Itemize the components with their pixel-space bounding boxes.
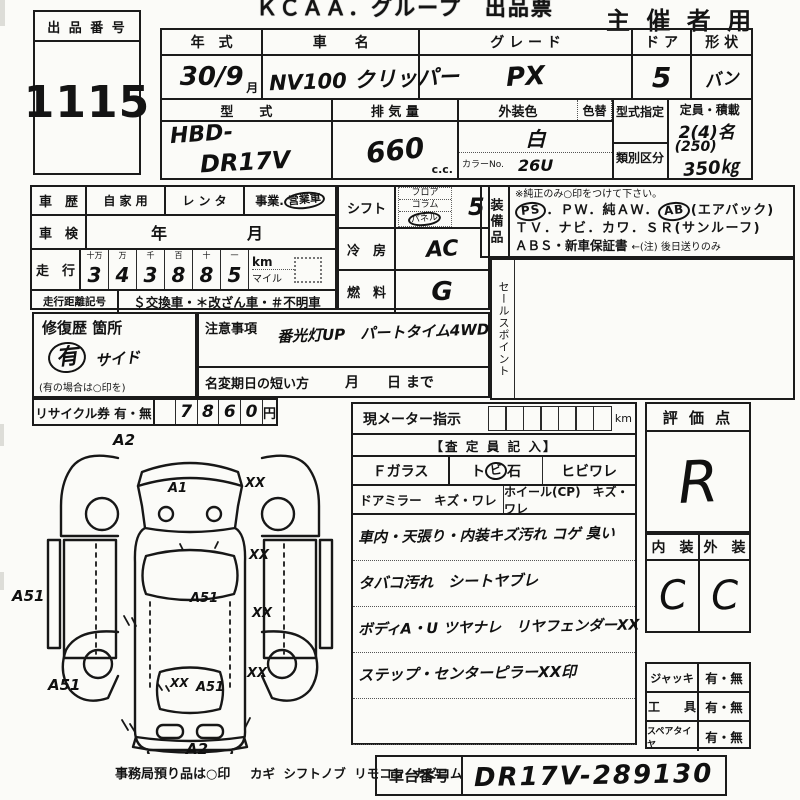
meter-digit-box <box>523 406 542 431</box>
fuel-label: 燃 料 <box>339 271 396 312</box>
assessor-note: タバコ汚れ シートヤブレ <box>353 559 635 594</box>
exhibit-number-box: 出 品 番 号 1115 <box>33 10 141 175</box>
meter-digit-box <box>575 406 594 431</box>
meter-digit-box <box>505 406 524 431</box>
cooling-label: 冷 房 <box>339 229 396 269</box>
meter-digit-box <box>558 406 577 431</box>
recycle-label: リサイクル券 有・無 <box>34 400 155 424</box>
scan-artifact <box>0 424 4 446</box>
history-block: 車 歴 自 家 用 レ ン タ 事業.営業車 車 検 年 月 走 行 十万 3 … <box>30 185 337 310</box>
mileage-digit-cell: 一 5 <box>221 250 249 289</box>
front-glass-label: Ｆガラス <box>353 457 450 484</box>
meter-label: 現メーター指示 <box>353 404 471 433</box>
repair-label: 修復歴 箇所 <box>42 317 122 338</box>
mileage-label: 走 行 <box>32 250 81 289</box>
assessor-note: ステップ・センターピラーXX印 <box>353 651 635 686</box>
recycle-digit: 6 <box>219 400 241 424</box>
displacement-unit: c.c. <box>432 163 453 176</box>
model-value-1: HBD- <box>169 120 234 149</box>
capacity-alt: (250) <box>675 139 717 155</box>
fuel-value: G <box>431 277 452 307</box>
diagram-label: XX <box>245 476 265 491</box>
recycle-digit: 7 <box>176 400 198 424</box>
rename-deadline-value: 月 日 まで <box>345 372 434 392</box>
diagram-label: A51 <box>48 676 80 694</box>
equipment-line3: ＡＢＳ・新車保証書 <box>515 238 628 253</box>
diagram-label: A1 <box>168 481 187 496</box>
recycle-digit: 0 <box>241 400 263 424</box>
displacement-value: 660 <box>364 131 426 170</box>
tools-value: 有・無 <box>699 693 749 720</box>
door-label: ド ア <box>633 30 691 56</box>
year-value: 30/9 <box>180 62 244 92</box>
equipment-label: 装備品 <box>482 187 510 256</box>
year-unit: 月 <box>246 79 258 96</box>
rating-label: 評 価 点 <box>647 404 749 432</box>
meter-unit: km <box>612 412 635 425</box>
meter-digit-box <box>488 406 507 431</box>
capacity-load: 350㎏ <box>682 152 739 182</box>
vehicle-table-row2: 型 式 HBD- DR17V 排 気 量 660 c.c. 外装色 色替 白 カ… <box>160 98 753 180</box>
stone-chip-circled: ビ <box>484 460 508 480</box>
exterior-color-label: 外装色 <box>459 100 577 120</box>
vehicle-table-row1: 年 式 30/9 月 車 名 NV100 クリッパー グ レ ー ド PX ド … <box>160 28 753 100</box>
mileage-checkbox <box>294 257 322 283</box>
history-business-circled: 営業車 <box>283 190 326 211</box>
tools-label: 工 具 <box>647 693 699 720</box>
chassis-value: DR17V-289130 <box>474 758 714 792</box>
door-mirror-label: ドアミラー キズ・ワレ <box>353 486 503 513</box>
shift-option-column: コラム <box>399 200 451 212</box>
caution-block: 注意事項 番光灯UP パートタイム4WD 名変期日の短い方 月 日 まで <box>197 312 490 398</box>
exterior-label: 外 装 <box>700 535 749 561</box>
model-label: 型 式 <box>162 100 331 122</box>
sales-point-block: セールスポイント <box>490 258 795 400</box>
color-change-label: 色替 <box>577 100 612 120</box>
diagram-label: A2 <box>113 431 135 449</box>
grade-value: PX <box>505 61 546 93</box>
mileage-unit-mile: マイル <box>252 269 294 285</box>
wheel-label: ホイール(CP) キズ・ワレ <box>503 486 635 513</box>
inspection-label: 車 検 <box>32 216 87 248</box>
repair-mark: 有 <box>46 340 87 375</box>
spare-tire-value: 有・無 <box>699 722 749 751</box>
classification-label: 類別区分 <box>614 142 667 178</box>
stone-chip-label: ト <box>471 461 485 481</box>
color-no-label: カラーNo. <box>459 161 504 170</box>
equipment-ab-circled: AB <box>658 200 692 222</box>
diagram-label: A2 <box>186 740 208 758</box>
chassis-label: 車台番号 <box>377 757 463 794</box>
recycle-unit: 円 <box>263 400 276 424</box>
recycle-digit: 8 <box>198 400 220 424</box>
equipment-line2: ＴＶ．ナビ．カワ．ＳＲ(サンルーフ) <box>515 220 788 238</box>
odo-symbol-value: ＄交換車・＊改ざん車・＃不明車 <box>119 291 335 312</box>
equipment-line3-note: ←(注) 後日送りのみ <box>632 242 721 253</box>
color-no-value: 26U <box>518 156 553 175</box>
recycle-spacer <box>155 400 176 424</box>
chassis-block: 車台番号 DR17V-289130 <box>375 755 727 796</box>
rating-block: 評 価 点 R <box>645 402 751 533</box>
recycle-block: リサイクル券 有・無 7 8 6 0 円 <box>32 398 278 426</box>
caution-label: 注意事項 <box>205 318 257 337</box>
shift-block: シフト フロア コラム パネル 5 冷 房 AC 燃 料 G <box>337 185 490 310</box>
crack-label: ヒビワレ <box>542 457 635 484</box>
diagram-label: XX <box>249 548 269 563</box>
equipment-ps-circled: PS <box>514 200 547 222</box>
meter-digit-box <box>593 406 612 431</box>
model-value-2: DR17V <box>199 146 291 179</box>
car-name-label: 車 名 <box>263 30 418 56</box>
exterior-color-value: 白 <box>525 123 545 152</box>
rename-deadline-label: 名変期日の短い方 <box>199 373 309 392</box>
meter-block: 現メーター指示 km 【査 定 員 記 入】 Ｆガラス トビ石 ヒビワレ ドアミ… <box>351 402 637 745</box>
caution-value: 番光灯UP パートタイム4WD <box>277 318 490 346</box>
shape-label: 形 状 <box>692 30 751 56</box>
grade-label: グ レ ー ド <box>420 30 631 56</box>
accessories-block: ジャッキ 有・無 工 具 有・無 スペアタイヤ 有・無 <box>645 662 751 749</box>
sales-point-empty <box>515 260 793 398</box>
exterior-grade: C <box>709 572 740 620</box>
history-business-prefix: 事業. <box>255 192 284 209</box>
shift-option-panel: パネル <box>408 210 442 228</box>
exhibit-number-label: 出 品 番 号 <box>35 12 139 42</box>
odo-symbol-label: 走行距離記号 <box>32 291 119 312</box>
repair-block: 修復歴 箇所 有 サイド (有の場合は○印を) <box>32 312 197 398</box>
diagram-label: A51 <box>196 680 224 695</box>
diagram-label: XX <box>252 606 272 621</box>
mileage-digit-cell: 十万 3 <box>81 250 109 289</box>
mileage-digit-cell: 十 8 <box>193 250 221 289</box>
shift-label: シフト <box>339 187 396 227</box>
capacity-label: 定員・積載 <box>669 100 751 118</box>
mileage-digit-cell: 千 3 <box>137 250 165 289</box>
equipment-line1: ．ＰＷ．純ＡＷ． <box>546 203 658 218</box>
type-designation-label: 型式指定 <box>614 100 667 142</box>
history-label: 車 歴 <box>32 187 87 214</box>
scan-artifact <box>0 572 4 590</box>
shift-option-floor: フロア <box>399 188 451 200</box>
rating-value: R <box>676 447 720 517</box>
inspection-value: 年 月 <box>87 216 335 248</box>
spare-tire-label: スペアタイヤ <box>647 722 699 751</box>
equipment-note: ※純正のみ○印をつけて下さい。 <box>515 188 788 202</box>
meter-digit-box <box>540 406 559 431</box>
assessor-note: 車内・天張り・内装キズ汚れ コゲ 臭い <box>353 513 635 548</box>
assessor-note: ボディA・U ツヤナレ リヤフェンダーXX <box>353 605 635 640</box>
office-note: 事務局預り品は○印 <box>115 763 230 782</box>
exhibit-number-value: 1115 <box>35 42 139 162</box>
history-private: 自 家 用 <box>87 187 166 214</box>
equipment-block: 装備品 ※純正のみ○印をつけて下さい。 PS．ＰＷ．純ＡＷ．AB(エアバック) … <box>480 185 795 258</box>
sales-point-label: セールスポイント <box>492 260 515 398</box>
interior-exterior-block: 内 装 C 外 装 C <box>645 533 751 633</box>
diagram-label: XX <box>247 666 267 681</box>
jack-value: 有・無 <box>699 664 749 691</box>
interior-grade: C <box>656 572 689 621</box>
door-value: 5 <box>652 61 671 94</box>
mileage-digit-cell: 百 8 <box>165 250 193 289</box>
repair-detail: サイド <box>94 346 141 371</box>
sheet-title: ＫＣＡＡ．グループ 出品票 <box>255 0 555 22</box>
repair-note: (有の場合は○印を) <box>39 379 126 394</box>
shape-value: バン <box>703 62 741 92</box>
assessor-note-empty <box>353 699 635 745</box>
mileage-unit-km: km <box>252 255 294 269</box>
history-rental: レ ン タ <box>166 187 245 214</box>
year-label: 年 式 <box>162 30 261 56</box>
equipment-line1-suffix: (エアバック) <box>691 203 774 218</box>
assessor-header: 【査 定 員 記 入】 <box>353 435 635 457</box>
auction-sheet: ＫＣＡＡ．グループ 出品票 主 催 者 用 出 品 番 号 1115 年 式 3… <box>0 0 800 800</box>
scan-artifact <box>0 0 5 26</box>
interior-label: 内 装 <box>647 535 698 561</box>
diagram-label: A51 <box>12 587 44 605</box>
displacement-label: 排 気 量 <box>333 100 457 122</box>
cooling-value: AC <box>425 236 459 263</box>
diagram-label: A51 <box>190 591 218 606</box>
jack-label: ジャッキ <box>647 664 699 691</box>
diagram-label: XX <box>170 676 189 690</box>
mileage-digit-cell: 万 4 <box>109 250 137 289</box>
